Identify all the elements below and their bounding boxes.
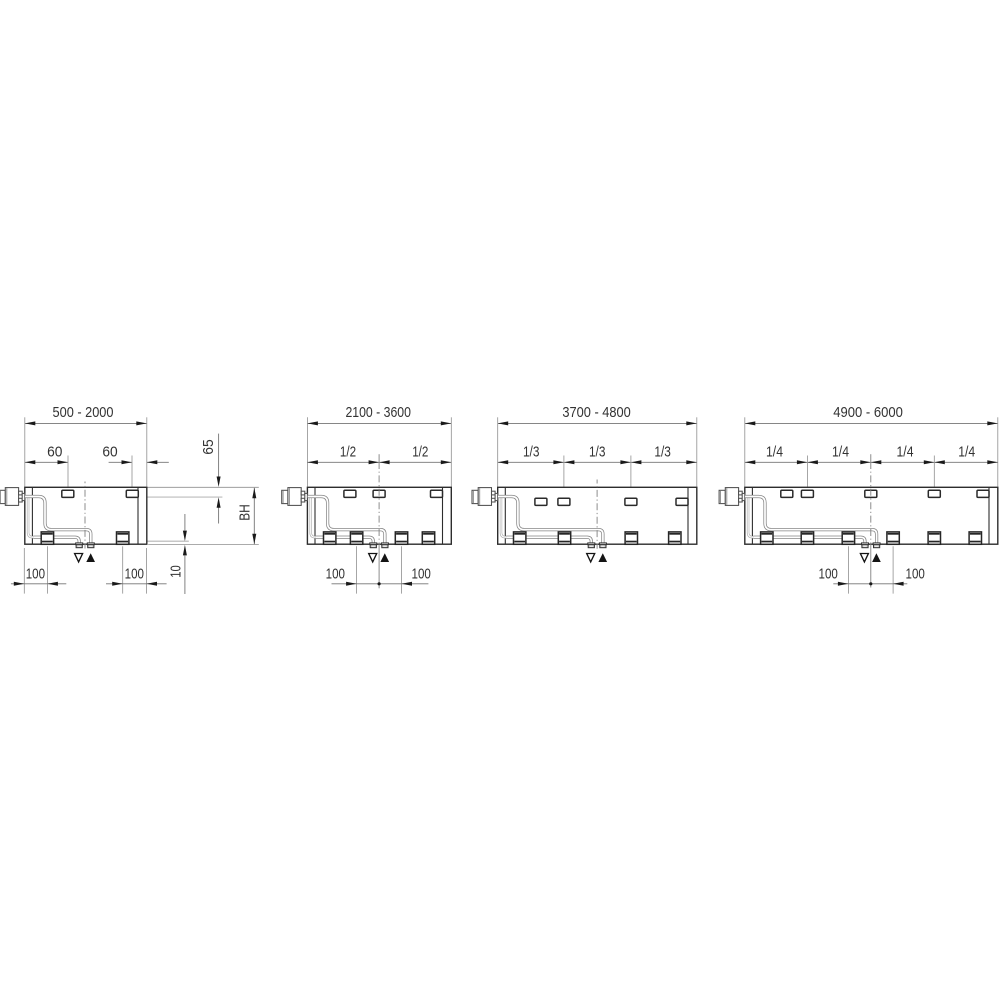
svg-text:3700 - 4800: 3700 - 4800: [562, 404, 630, 421]
svg-text:500 - 2000: 500 - 2000: [53, 404, 114, 421]
svg-text:1/4: 1/4: [832, 444, 849, 461]
svg-text:100: 100: [412, 565, 431, 582]
svg-text:1/3: 1/3: [589, 444, 606, 461]
svg-text:1/3: 1/3: [654, 444, 671, 461]
svg-text:65: 65: [200, 439, 217, 455]
svg-text:1/2: 1/2: [412, 444, 428, 461]
svg-text:2100 - 3600: 2100 - 3600: [345, 404, 411, 421]
svg-text:4900 - 6000: 4900 - 6000: [833, 404, 903, 421]
svg-text:100: 100: [819, 565, 838, 582]
svg-text:1/4: 1/4: [958, 444, 975, 461]
svg-text:1/4: 1/4: [897, 444, 914, 461]
svg-text:100: 100: [906, 565, 925, 582]
svg-text:1/4: 1/4: [766, 444, 783, 461]
svg-text:60: 60: [102, 444, 117, 461]
svg-text:100: 100: [26, 565, 45, 582]
svg-text:100: 100: [326, 565, 345, 582]
svg-text:1/2: 1/2: [340, 444, 356, 461]
svg-text:1/3: 1/3: [523, 444, 540, 461]
svg-text:BH: BH: [237, 504, 254, 521]
svg-text:100: 100: [125, 565, 144, 582]
svg-text:10: 10: [168, 565, 185, 578]
svg-text:60: 60: [47, 444, 62, 461]
